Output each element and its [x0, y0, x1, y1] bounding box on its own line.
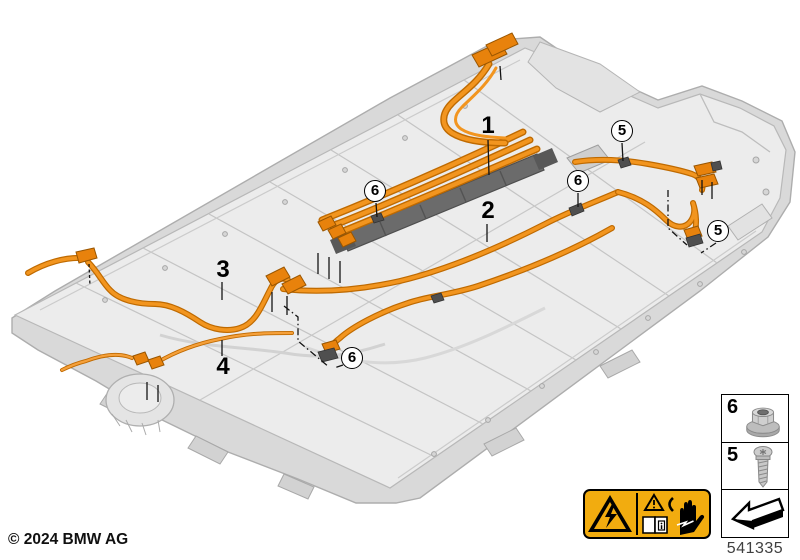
electric-shock-hazard-triangle-icon [588, 495, 632, 532]
callout-5-top[interactable]: 5 [611, 120, 633, 142]
installation-direction-arrow-icon [725, 492, 785, 536]
callout-6-bottom[interactable]: 6 [341, 347, 363, 369]
callout-6-left[interactable]: 6 [364, 180, 386, 202]
legend-label-6: 6 [727, 396, 738, 419]
torx-screw-icon [750, 445, 776, 489]
high-voltage-warning-label [583, 489, 711, 539]
callout-3[interactable]: 3 [210, 257, 236, 285]
battery-pack-illustration [0, 0, 800, 560]
legend-row-nut[interactable]: 6 [722, 395, 788, 442]
read-manual-book-icon [643, 517, 667, 533]
diagram-part-number: 541335 [713, 540, 797, 558]
legend-row-direction [722, 489, 788, 537]
callout-6-middle[interactable]: 6 [567, 170, 589, 192]
warning-label-icons [585, 491, 709, 537]
legend-label-5: 5 [727, 444, 738, 467]
copyright-notice: © 2024 BMW AG [8, 531, 128, 549]
round-unit [106, 374, 174, 435]
callout-4[interactable]: 4 [210, 354, 236, 382]
callout-1[interactable]: 1 [475, 113, 501, 141]
fastener-legend: 6 5 [721, 394, 789, 538]
flange-nut-icon [740, 399, 786, 439]
callout-5-right[interactable]: 5 [707, 220, 729, 242]
callout-2[interactable]: 2 [475, 198, 501, 226]
hand-electric-shock-icon [670, 498, 705, 535]
warning-triangle-icon [645, 495, 663, 510]
battery-pack-body [12, 37, 795, 503]
legend-row-screw[interactable]: 5 [722, 442, 788, 490]
parts-diagram: 1 2 3 4 5 5 6 6 6 6 5 [0, 0, 800, 560]
